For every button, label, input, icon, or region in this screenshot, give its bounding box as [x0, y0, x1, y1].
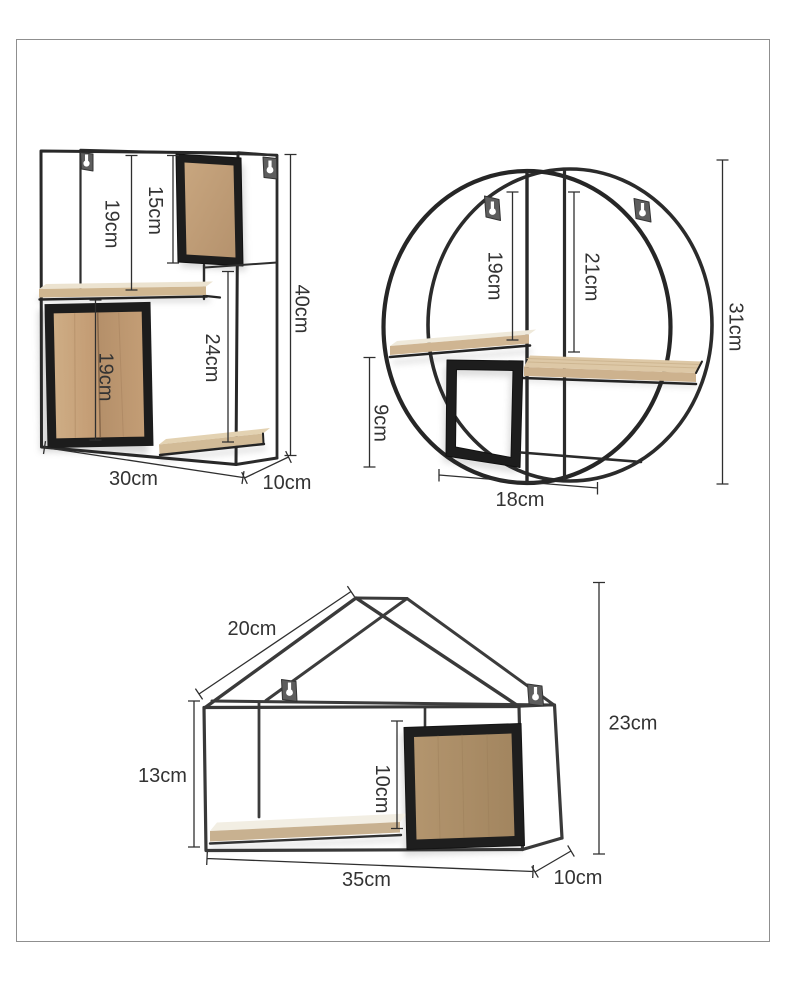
- svg-text:21cm: 21cm: [581, 253, 603, 302]
- svg-text:19cm: 19cm: [101, 200, 123, 249]
- svg-text:30cm: 30cm: [109, 468, 158, 490]
- svg-text:10cm: 10cm: [554, 867, 603, 889]
- svg-text:9cm: 9cm: [370, 404, 392, 442]
- svg-text:20cm: 20cm: [228, 618, 277, 640]
- svg-text:24cm: 24cm: [201, 334, 223, 383]
- svg-text:19cm: 19cm: [95, 353, 117, 402]
- svg-text:19cm: 19cm: [484, 252, 506, 301]
- svg-text:13cm: 13cm: [138, 765, 187, 787]
- svg-text:40cm: 40cm: [291, 285, 313, 334]
- svg-text:23cm: 23cm: [609, 713, 658, 735]
- svg-text:35cm: 35cm: [342, 869, 391, 891]
- svg-text:18cm: 18cm: [496, 489, 545, 511]
- svg-text:10cm: 10cm: [371, 765, 393, 814]
- svg-text:31cm: 31cm: [725, 303, 747, 352]
- svg-text:10cm: 10cm: [263, 472, 312, 494]
- svg-text:15cm: 15cm: [144, 186, 166, 235]
